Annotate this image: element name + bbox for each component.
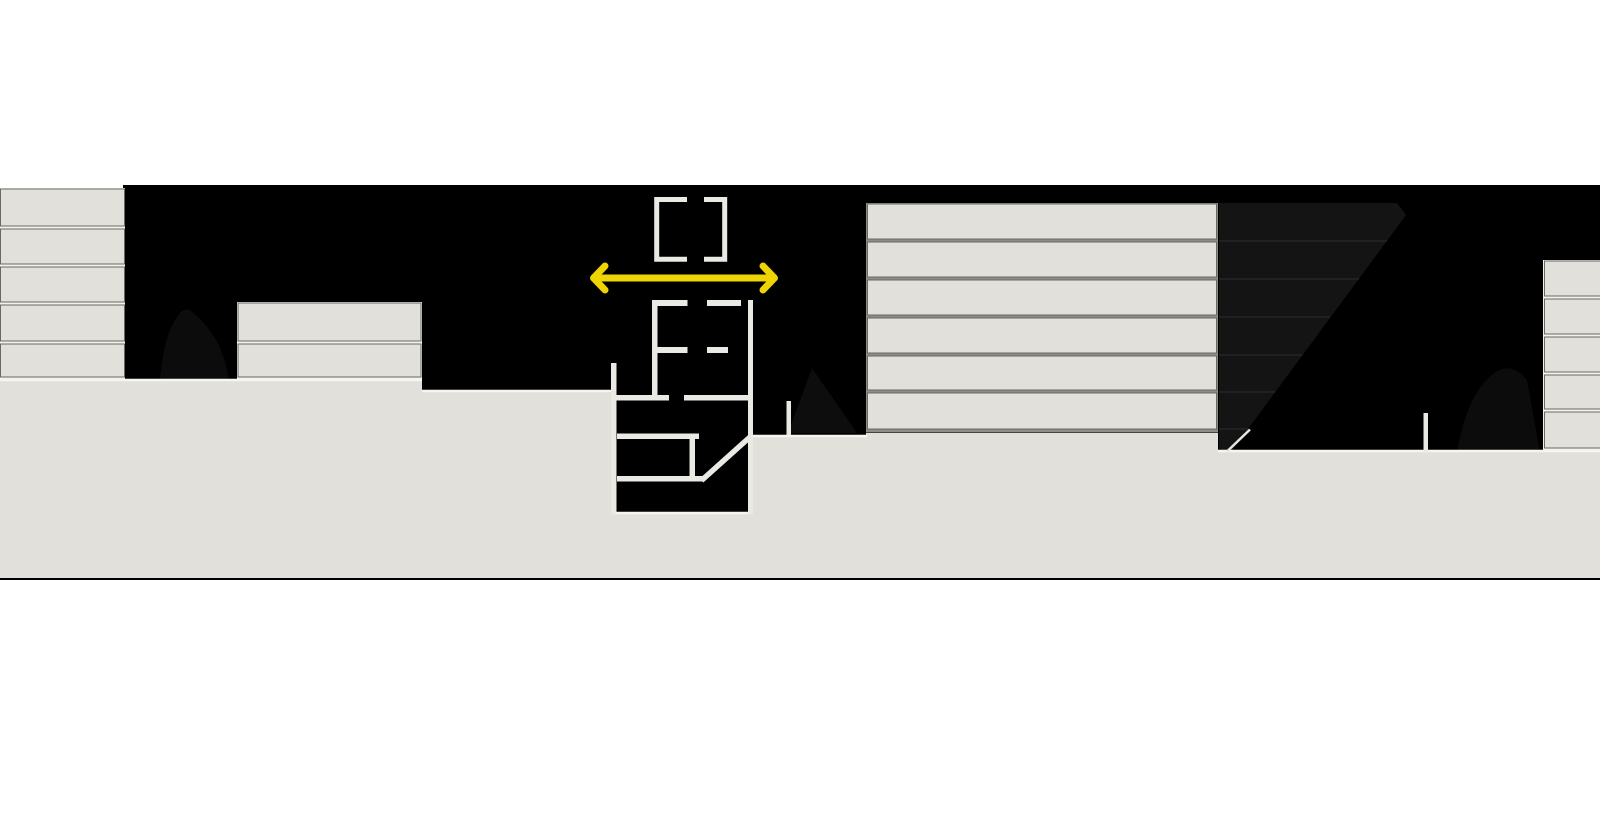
building-center-right-floor-6 [868, 204, 1217, 239]
platform-floor-lower [617, 476, 703, 482]
section-illustration-page [0, 0, 1600, 834]
building-center-right [866, 203, 1218, 432]
ground-tick-right [1424, 413, 1429, 453]
building-left-tower-floor-2 [1, 305, 125, 341]
building-left-tower-floor-1 [1, 344, 125, 377]
building-far-right-floor-5 [1545, 261, 1600, 296]
building-center-right-floor-1 [868, 393, 1217, 429]
building-center-right-floor-3 [868, 318, 1217, 353]
platform-support [690, 439, 696, 479]
concourse-floor-right [684, 395, 748, 401]
concourse-floor-left [616, 395, 669, 401]
roof-slab-right [707, 300, 741, 306]
building-center-right-floor-5 [868, 242, 1217, 277]
building-far-right-floor-3 [1545, 337, 1600, 372]
building-far-right-floor-2 [1545, 375, 1600, 409]
building-far-right-floor-1 [1545, 412, 1600, 448]
ground-tick-left [787, 401, 792, 435]
building-left-tower [0, 188, 125, 380]
band-top-notch [0, 185, 123, 188]
building-mid-left-floor-2 [238, 303, 421, 341]
building-left-tower-floor-4 [1, 229, 125, 264]
building-mid-left [237, 302, 422, 379]
building-far-right-floor-4 [1545, 299, 1600, 334]
mezzanine-slab-right [707, 347, 728, 353]
mezzanine-slab-left [652, 347, 688, 353]
building-left-tower-floor-3 [1, 267, 125, 302]
roof-slab-left [652, 300, 688, 306]
section-illustration-canvas [0, 0, 1600, 834]
building-mid-left-floor-1 [238, 344, 421, 377]
building-center-right-floor-2 [868, 356, 1217, 390]
shaft-wall-left [611, 363, 617, 514]
platform-floor-upper [617, 434, 699, 440]
building-left-tower-floor-5 [1, 189, 125, 226]
building-center-right-floor-4 [868, 280, 1217, 315]
building-far-right [1543, 260, 1600, 450]
wall-right [748, 300, 753, 514]
